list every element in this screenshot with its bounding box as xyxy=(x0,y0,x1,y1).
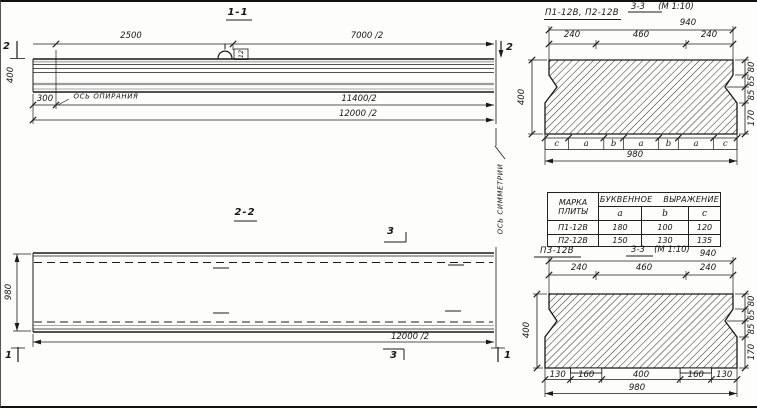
dim-400-left-top-section: 400 xyxy=(518,89,527,105)
section-1-1-elevation xyxy=(10,20,501,124)
dim-460-bottom: 460 xyxy=(636,264,652,273)
dim-width-980-plan: 980 xyxy=(5,284,14,300)
dim-height-400-elevation: 400 xyxy=(7,67,16,83)
support-axis-label: ОСЬ ОПИРАНИЯ xyxy=(73,94,138,101)
dim-240-left-top: 240 xyxy=(564,31,580,40)
table-header-mark-line1: МАРКА xyxy=(548,198,598,207)
dim-2500: 2500 xyxy=(120,32,142,41)
table-header-expression: БУКВЕННОЕ ВЫРАЖЕНИЕ xyxy=(599,193,721,207)
plate-parameters-table: МАРКА ПЛИТЫ БУКВЕННОЕ ВЫРАЖЕНИЕ a b c П1… xyxy=(547,192,721,247)
dim-460-top: 460 xyxy=(633,31,649,40)
table-col-b: b xyxy=(642,207,689,221)
letter-dim-c2: c xyxy=(723,139,728,148)
blueprint-canvas: 1-1 2500 7000 /2 11400/2 12000 /2 300 ОС… xyxy=(0,0,757,408)
dim-12000-2-elevation: 12000 /2 xyxy=(339,110,377,119)
table-header-mark-line2: ПЛИТЫ xyxy=(548,207,598,216)
dim-300: 300 xyxy=(37,95,53,104)
letter-dim-c1: c xyxy=(554,139,559,148)
cut-marker-1-right: 1 xyxy=(504,351,512,361)
dim-65-bottom-section: 65 xyxy=(748,310,757,321)
dim-400-bottom: 400 xyxy=(633,370,649,379)
table-cell-c: 135 xyxy=(689,235,721,247)
dim-80-top-section: 80 xyxy=(748,62,757,73)
table-cell-mark: П2-12В xyxy=(548,235,599,247)
dim-65-top-section: 65 xyxy=(748,76,757,87)
table-cell-c: 120 xyxy=(689,221,721,235)
dim-170-bottom-section: 170 xyxy=(748,343,757,359)
dim-240-right-bottom: 240 xyxy=(700,264,716,273)
section-3-3-top-title: 3-3 xyxy=(631,3,645,12)
dim-980-bottom-section: 980 xyxy=(629,384,645,393)
lifting-loop-mark: 12 xyxy=(238,50,245,58)
dim-11400-2: 11400/2 xyxy=(341,95,376,104)
section-3-3-top-scale: (М 1:10) xyxy=(658,3,694,12)
dim-940-bottom: 940 xyxy=(700,250,716,259)
dim-240-left-bottom: 240 xyxy=(571,264,587,273)
table-row: П1-12В 180 100 120 xyxy=(548,221,721,235)
section-1-1-title: 1-1 xyxy=(227,8,248,18)
section-3-3-bottom-title: 3-3 xyxy=(631,246,645,255)
cut-marker-2-left: 2 xyxy=(3,42,11,52)
letter-dim-a2: a xyxy=(639,139,644,148)
table-header-mark: МАРКА ПЛИТЫ xyxy=(548,193,599,221)
table-cell-mark: П1-12В xyxy=(548,221,599,235)
section-2-2-title: 2-2 xyxy=(234,208,255,218)
dim-940-top: 940 xyxy=(680,19,696,28)
dim-160-2: 160 xyxy=(688,370,704,379)
dim-170-top-section: 170 xyxy=(748,110,757,126)
dim-980-top-section: 980 xyxy=(627,150,643,159)
letter-dim-b2: b xyxy=(666,139,671,148)
letter-dim-a3: a xyxy=(693,139,698,148)
slab-cross-section-hatched xyxy=(545,60,737,134)
cut-marker-3-top: 3 xyxy=(387,227,395,237)
cut-marker-3-bottom: 3 xyxy=(390,351,398,361)
table-cell-b: 100 xyxy=(642,221,689,235)
symmetry-axis-label: ОСЬ СИММЕТРИИ xyxy=(498,164,505,235)
letter-dim-a1: a xyxy=(584,139,589,148)
dim-400-left-bottom-section: 400 xyxy=(523,322,532,338)
dim-12000-2-plan: 12000 /2 xyxy=(391,333,429,342)
dim-160-1: 160 xyxy=(578,370,594,379)
cut-marker-1-left: 1 xyxy=(5,351,13,361)
dim-80-bottom-section: 80 xyxy=(748,296,757,307)
letter-dim-b1: b xyxy=(611,139,616,148)
dim-85-bottom-section: 85 xyxy=(748,324,757,335)
dim-130-1: 130 xyxy=(550,370,566,379)
plate-label-p1-p2: П1-12В, П2-12В xyxy=(545,9,619,18)
cut-marker-2-right: 2 xyxy=(506,43,514,53)
section-2-2-plan xyxy=(11,221,505,362)
dim-7000-2: 7000 /2 xyxy=(351,32,384,41)
dim-85-top-section: 85 xyxy=(748,90,757,101)
slab-cross-section-hatched xyxy=(545,294,737,368)
dim-240-right-top: 240 xyxy=(701,31,717,40)
dim-130-2: 130 xyxy=(716,370,732,379)
table-col-a: a xyxy=(599,207,642,221)
section-3-3-bottom-scale: (М 1:10) xyxy=(654,246,690,255)
table-col-c: c xyxy=(689,207,721,221)
table-cell-a: 180 xyxy=(599,221,642,235)
plate-label-p3: П3-12В xyxy=(540,247,574,256)
